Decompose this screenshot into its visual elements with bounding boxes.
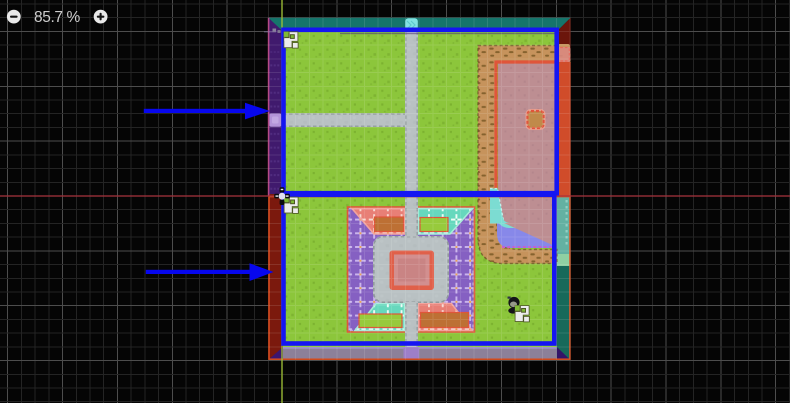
svg-text:85.7 %: 85.7 % — [34, 9, 80, 26]
